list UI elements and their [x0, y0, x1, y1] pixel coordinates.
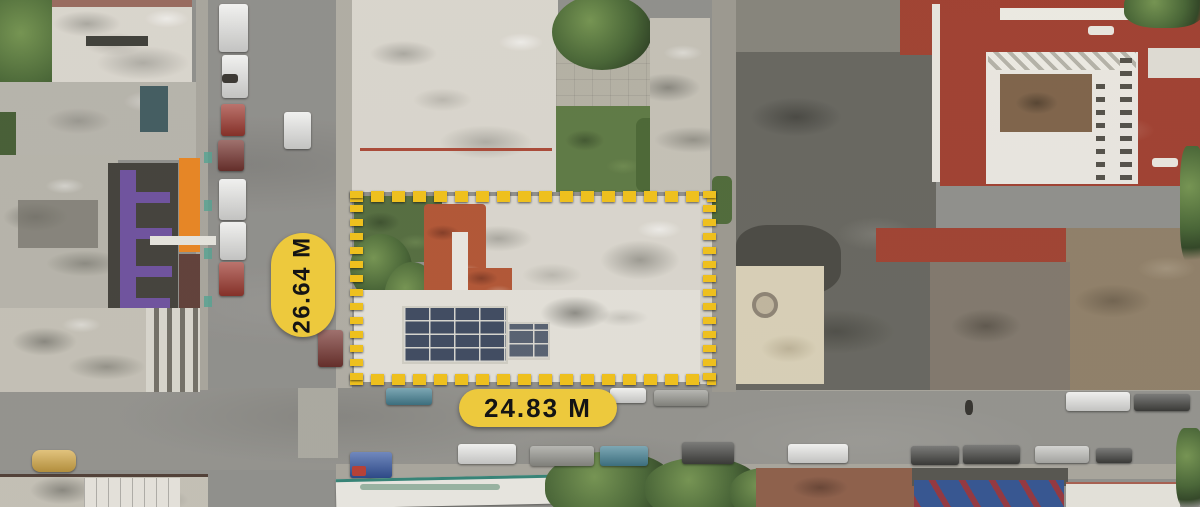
building-roof [930, 262, 1070, 390]
curb-ramp [298, 388, 338, 458]
roof-stain [600, 240, 680, 280]
property-boundary-left [350, 191, 363, 385]
truck-cab-accent [352, 466, 366, 476]
parked-car [1035, 446, 1089, 463]
parked-car [1096, 448, 1132, 463]
rooftop-debris [1088, 26, 1114, 35]
white-sloped-roof [1148, 48, 1200, 78]
white-parapet [1000, 8, 1138, 20]
parked-car [911, 446, 959, 465]
patio-shadow [18, 200, 98, 248]
awning-arm [120, 266, 172, 277]
parked-car [220, 222, 246, 260]
storefront-purple-awning [120, 170, 136, 310]
parked-car [219, 179, 246, 220]
parked-car [458, 444, 516, 464]
parking-bays [146, 308, 200, 392]
parked-car [219, 4, 248, 52]
front-measurement-label: 24.83 M [459, 389, 617, 427]
lane-marker [204, 200, 212, 211]
parked-car [788, 444, 848, 463]
parked-truck [32, 450, 76, 472]
awning-arm [122, 298, 170, 308]
tree-canopy [1124, 0, 1200, 28]
roof-red-line [360, 148, 552, 151]
inner-courtyard [1000, 74, 1092, 132]
roof-vent [86, 36, 148, 46]
solar-panel-array [404, 308, 506, 362]
property-boundary-top [350, 191, 716, 202]
skylight-glass [140, 86, 168, 132]
red-roof-patch [876, 228, 1066, 262]
parked-car [600, 446, 648, 466]
building-roof [352, 0, 558, 192]
building-roof [0, 308, 148, 392]
window-row [1096, 84, 1105, 180]
storefront-maroon [179, 254, 200, 308]
parked-car [1066, 392, 1130, 411]
cream-building-roof [736, 266, 824, 384]
property-boundary-right [703, 191, 716, 385]
roof-vent [752, 292, 778, 318]
motorcycle [222, 74, 238, 83]
bare-ground [756, 468, 916, 507]
side-measurement-label: 26.64 M [271, 233, 335, 337]
parked-car [1134, 394, 1190, 411]
rooftop-debris [1152, 158, 1178, 167]
front-measurement-text: 24.83 M [484, 393, 592, 424]
lane-marker [204, 248, 212, 259]
rooftop-beams [988, 52, 1136, 70]
parked-car [682, 442, 734, 464]
parked-trailer [84, 478, 180, 507]
trailer-lettering [360, 484, 500, 490]
white-roof [1066, 482, 1180, 507]
parked-car [654, 390, 708, 406]
tree-canopy [1180, 146, 1200, 262]
awning-arm [120, 192, 170, 203]
blue-roof [914, 480, 1064, 507]
window-row [1120, 58, 1132, 180]
parked-car [963, 445, 1020, 464]
parked-car [221, 104, 245, 136]
pedestrian [965, 400, 973, 415]
parked-car [530, 446, 594, 466]
lane-marker [204, 152, 212, 163]
building-roof [1066, 228, 1200, 390]
parked-car [386, 388, 432, 405]
side-measurement-text: 26.64 M [289, 236, 317, 333]
parked-car [318, 330, 343, 367]
parked-car [218, 140, 244, 171]
tree-canopy [1176, 428, 1200, 507]
building-roof [650, 18, 710, 192]
white-parapet [932, 4, 940, 182]
roof-stain [540, 296, 610, 330]
white-wall [452, 232, 468, 290]
parked-car [219, 262, 244, 296]
property-boundary-bottom [350, 374, 716, 385]
white-beam [150, 236, 216, 245]
roof-edge-tiles [52, 0, 192, 7]
lane-marker [204, 296, 212, 307]
aerial-photo: 26.64 M 24.83 M [0, 0, 1200, 507]
driving-car [284, 112, 311, 149]
